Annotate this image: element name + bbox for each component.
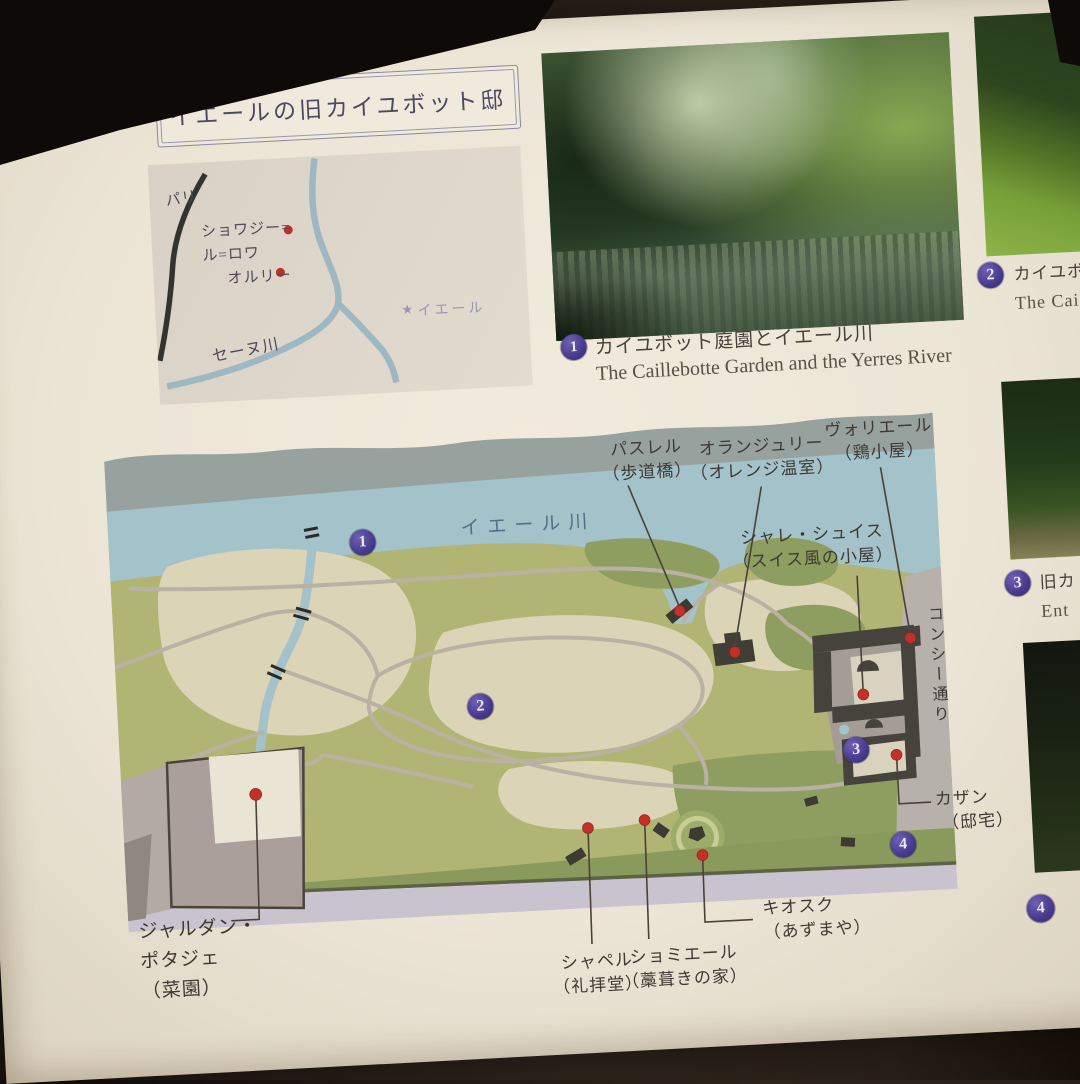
inset-label-yerres: イエール <box>417 297 486 321</box>
kiosque-label: キオスク （あずまや） <box>762 891 872 945</box>
sidebar-number-4: 4 <box>1036 899 1045 917</box>
sidebar-caption-3-en: Ent <box>1041 598 1070 623</box>
sidebar-caption-2-en: The Cai <box>1014 288 1080 315</box>
potager-name-1: ジャルダン・ <box>138 912 258 948</box>
inset-location-map: パリ ショワジー= ル=ロワ オルリー セーヌ川 ★ イエール <box>148 146 533 405</box>
garden-river-photo <box>541 32 964 341</box>
map-marker-1-num: 1 <box>358 533 367 551</box>
map-marker-3-num: 3 <box>852 741 861 759</box>
yerres-star-icon: ★ <box>401 301 414 318</box>
estate-map-art <box>103 404 957 932</box>
kiosque-sub: （あずまや） <box>763 915 872 945</box>
casin-label: カザン （邸宅） <box>934 784 1014 836</box>
sidebar-photo-3 <box>1001 376 1080 560</box>
inset-map-art <box>148 146 533 405</box>
sidebar-badge-2: 2 <box>977 262 1004 289</box>
voliere-label: ヴォリエール （鶏小屋） <box>778 411 980 469</box>
sidebar-photo-4 <box>1023 637 1080 873</box>
chaumiere-label: ショミエール （藁葺きの家） <box>598 939 770 996</box>
potager-sub: （菜園） <box>141 971 261 1007</box>
caption-number-badge: 1 <box>560 333 587 360</box>
river-bank <box>552 248 695 342</box>
caption-number: 1 <box>570 338 578 355</box>
estate-map <box>103 404 957 932</box>
casin-sub: （邸宅） <box>942 808 1015 836</box>
sidebar-badge-3: 3 <box>1004 570 1031 597</box>
book-page: イエールの旧カイユボット邸 パリ ショワジー= ル=ロワ オルリー セーヌ川 ★… <box>0 0 1080 1084</box>
book-photo: { "title": "イエールの旧カイユボット邸", "inset_map":… <box>0 0 1080 1080</box>
sidebar-badge-4: 4 <box>1026 894 1055 923</box>
map-marker-4-num: 4 <box>899 835 908 853</box>
map-marker-2-num: 2 <box>476 697 485 715</box>
sidebar-number-3: 3 <box>1013 574 1022 592</box>
sidebar-caption-3-jp: 旧カ <box>1039 569 1076 595</box>
sidebar-number-2: 2 <box>986 266 995 284</box>
inset-label-choisy-2: ル=ロワ <box>202 241 260 265</box>
inset-label-orly: オルリー <box>227 264 292 288</box>
sidebar-caption-2-jp: カイユボ <box>1013 259 1080 287</box>
potager-label: ジャルダン・ ポタジェ （菜園） <box>138 912 262 1008</box>
